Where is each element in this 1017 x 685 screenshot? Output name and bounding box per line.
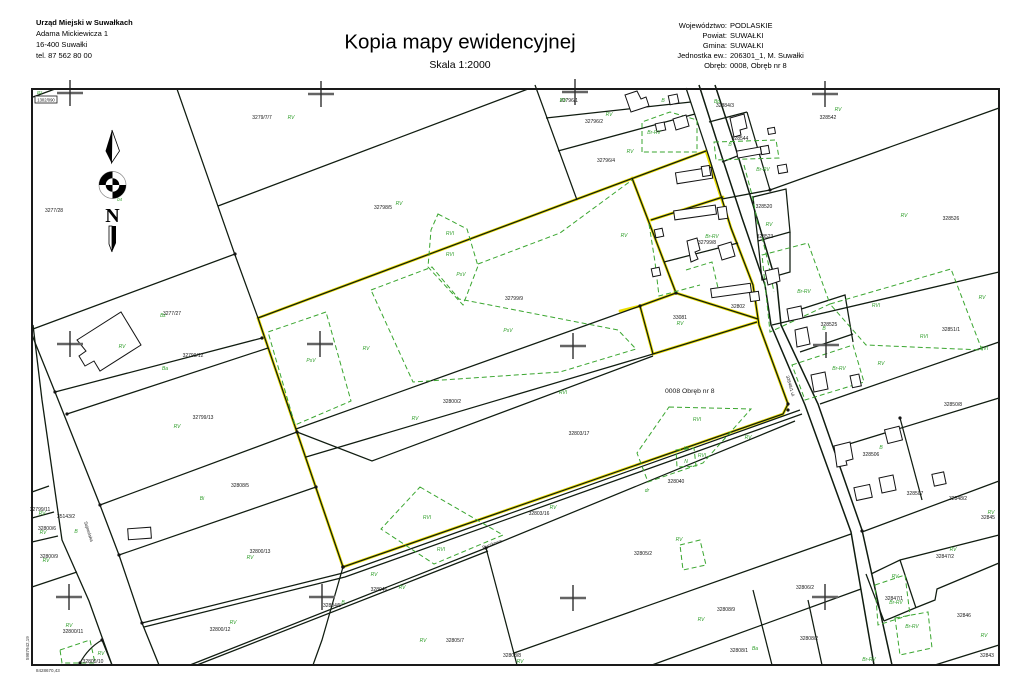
svg-text:3277/28: 3277/28 [45, 208, 63, 214]
svg-text:0008, Obręb nr 8: 0008, Obręb nr 8 [730, 61, 787, 70]
svg-text:Br-RV: Br-RV [905, 624, 919, 630]
svg-text:Br-RV: Br-RV [889, 600, 903, 606]
svg-text:Skala 1:2000: Skala 1:2000 [429, 59, 490, 71]
svg-text:Adama Mickiewicza 1: Adama Mickiewicza 1 [36, 29, 108, 38]
svg-text:Br-RV: Br-RV [797, 289, 811, 295]
svg-text:RV: RV [396, 201, 404, 207]
svg-text:32803/17: 32803/17 [569, 431, 590, 437]
svg-text:32806/2: 32806/2 [796, 585, 814, 591]
svg-text:RVI: RVI [698, 453, 707, 459]
svg-text:32805/7: 32805/7 [446, 638, 464, 644]
svg-text:32847/2: 32847/2 [936, 554, 954, 560]
svg-text:32800/12: 32800/12 [210, 627, 231, 633]
svg-text:32805/2: 32805/2 [634, 551, 652, 557]
svg-text:32802: 32802 [731, 304, 745, 310]
svg-text:Powiat:: Powiat: [702, 31, 727, 40]
svg-text:Br-RV: Br-RV [705, 234, 719, 240]
svg-text:RV: RV [420, 638, 428, 644]
svg-text:RV: RV [892, 574, 900, 580]
svg-text:32799/9: 32799/9 [505, 296, 523, 302]
svg-text:16-400 Suwałki: 16-400 Suwałki [36, 40, 88, 49]
svg-text:328046: 328046 [371, 587, 388, 593]
svg-text:SUWAŁKI: SUWAŁKI [730, 41, 763, 50]
svg-text:RV: RV [98, 651, 106, 657]
svg-text:32799/8: 32799/8 [698, 240, 716, 246]
svg-text:RV: RV [39, 511, 47, 517]
svg-text:32803/16: 32803/16 [529, 511, 550, 517]
svg-text:RV: RV [621, 233, 629, 239]
svg-text:PODLASKIE: PODLASKIE [730, 21, 773, 30]
svg-text:328544: 328544 [732, 136, 749, 142]
svg-text:RV: RV [766, 222, 774, 228]
svg-text:32846: 32846 [957, 613, 971, 619]
svg-text:32808/9: 32808/9 [717, 607, 735, 613]
svg-text:RV: RV [412, 416, 420, 422]
svg-text:Br-RV: Br-RV [832, 366, 846, 372]
svg-text:Ba: Ba [752, 646, 758, 652]
svg-text:RVI: RVI [437, 547, 446, 553]
svg-text:RV: RV [40, 530, 48, 536]
svg-text:32800/11: 32800/11 [63, 629, 84, 635]
svg-text:RVI: RVI [693, 417, 702, 423]
svg-text:RVI: RVI [446, 252, 455, 258]
svg-text:328506: 328506 [863, 452, 880, 458]
svg-text:RV: RV [560, 98, 568, 104]
svg-text:RV: RV [979, 295, 987, 301]
svg-text:PsV: PsV [456, 272, 466, 278]
svg-text:5987942,19: 5987942,19 [25, 636, 30, 660]
svg-text:Bp: Bp [714, 99, 720, 105]
svg-text:32799/12: 32799/12 [183, 353, 204, 359]
svg-text:RVI: RVI [559, 390, 568, 396]
svg-text:Gmina:: Gmina: [703, 41, 727, 50]
svg-text:328507: 328507 [907, 491, 924, 497]
svg-text:RV: RV [119, 344, 127, 350]
svg-text:RV: RV [676, 537, 684, 543]
svg-text:Jednostka ew.:: Jednostka ew.: [677, 51, 727, 60]
svg-text:328040: 328040 [668, 479, 685, 485]
svg-text:RV: RV [901, 213, 909, 219]
svg-text:RV: RV [745, 435, 753, 441]
svg-text:328526: 328526 [943, 216, 960, 222]
svg-text:Ba: Ba [162, 366, 168, 372]
svg-text:35143/2: 35143/2 [57, 514, 75, 520]
svg-text:RV: RV [627, 149, 635, 155]
svg-text:RV: RV [550, 505, 558, 511]
svg-text:N: N [105, 205, 120, 227]
svg-text:PsV: PsV [503, 328, 513, 334]
svg-text:N: N [684, 459, 688, 465]
svg-text:Urząd Miejski w Suwałkach: Urząd Miejski w Suwałkach [36, 18, 133, 27]
svg-text:32808/5: 32808/5 [231, 483, 249, 489]
svg-text:328542: 328542 [820, 115, 837, 121]
svg-text:32796/4: 32796/4 [597, 158, 615, 164]
svg-text:Br-RV: Br-RV [647, 130, 661, 136]
svg-text:RV: RV [399, 585, 407, 591]
svg-text:Bz: Bz [160, 313, 166, 319]
svg-text:Obręb:: Obręb: [704, 61, 727, 70]
svg-text:RVI: RVI [423, 515, 432, 521]
svg-text:206301_1, M. Suwałki: 206301_1, M. Suwałki [730, 51, 804, 60]
svg-text:RV: RV [835, 107, 843, 113]
svg-text:328520: 328520 [756, 204, 773, 210]
svg-text:PsV: PsV [306, 358, 316, 364]
svg-text:RV: RV [698, 617, 706, 623]
svg-text:32796/2: 32796/2 [585, 119, 603, 125]
svg-text:RV: RV [878, 361, 886, 367]
svg-text:RV: RV [247, 555, 255, 561]
svg-text:SUWAŁKI: SUWAŁKI [730, 31, 763, 40]
svg-text:RV: RV [677, 321, 685, 327]
svg-text:RV: RV [288, 115, 296, 121]
svg-text:RVI: RVI [872, 303, 881, 309]
svg-text:1302/090: 1302/090 [37, 98, 55, 103]
svg-text:RVI: RVI [446, 231, 455, 237]
svg-text:RV: RV [981, 633, 989, 639]
svg-text:RV: RV [43, 558, 51, 564]
svg-text:dr: dr [645, 488, 650, 494]
svg-text:0008 Obręb nr 8: 0008 Obręb nr 8 [665, 388, 715, 395]
svg-text:32804/5: 32804/5 [323, 603, 341, 609]
svg-text:Br-RV: Br-RV [756, 167, 770, 173]
svg-text:Br-RV: Br-RV [862, 657, 876, 663]
svg-text:04: 04 [117, 197, 123, 202]
svg-text:tel. 87 562 80 00: tel. 87 562 80 00 [36, 51, 92, 60]
svg-text:RV: RV [988, 510, 996, 516]
svg-text:32851/1: 32851/1 [942, 327, 960, 333]
svg-text:RV: RV [66, 623, 74, 629]
svg-text:32848/2: 32848/2 [949, 496, 967, 502]
svg-text:RV: RV [230, 620, 238, 626]
svg-text:3279/7/7: 3279/7/7 [252, 115, 272, 121]
svg-text:RV: RV [950, 547, 958, 553]
svg-text:8428670,43: 8428670,43 [36, 668, 60, 673]
svg-text:32808/1: 32808/1 [730, 648, 748, 654]
svg-text:RV: RV [606, 112, 614, 118]
svg-text:Bz: Bz [37, 90, 43, 95]
svg-text:Województwo:: Województwo: [679, 21, 727, 30]
svg-text:32798/5: 32798/5 [374, 205, 392, 211]
svg-text:Kopia mapy ewidencyjnej: Kopia mapy ewidencyjnej [344, 31, 575, 54]
svg-text:RVI: RVI [920, 334, 929, 340]
svg-text:32799/13: 32799/13 [193, 415, 214, 421]
svg-text:RVI: RVI [980, 346, 989, 352]
svg-text:RV: RV [174, 424, 182, 430]
svg-text:32843: 32843 [980, 653, 994, 659]
svg-text:RV: RV [371, 572, 379, 578]
svg-text:Ib: Ib [684, 446, 688, 452]
svg-text:328523: 328523 [757, 234, 774, 240]
svg-text:32808/2: 32808/2 [800, 636, 818, 642]
svg-text:32850/8: 32850/8 [944, 402, 962, 408]
svg-text:32800/2: 32800/2 [443, 399, 461, 405]
svg-text:RV: RV [363, 346, 371, 352]
